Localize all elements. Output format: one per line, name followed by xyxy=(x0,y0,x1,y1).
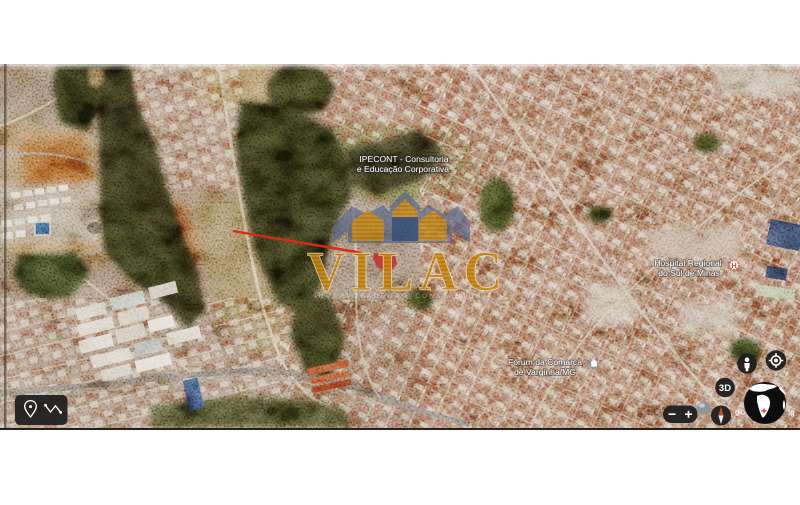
svg-text:IPECONT - Consultoria: IPECONT - Consultoria xyxy=(359,154,448,164)
svg-text:Fórum da Comarca: Fórum da Comarca xyxy=(508,357,582,367)
svg-text:glo: glo xyxy=(735,408,745,417)
svg-text:do Sul de Minas: do Sul de Minas xyxy=(658,268,720,278)
svg-text:3D: 3D xyxy=(719,383,731,394)
svg-text:Hospital Regional: Hospital Regional xyxy=(654,258,721,268)
svg-text:de Varginha/MG: de Varginha/MG xyxy=(514,367,576,377)
svg-text:H: H xyxy=(731,263,736,270)
svg-text:tg: tg xyxy=(788,408,795,417)
svg-text:e Educação Corporativa: e Educação Corporativa xyxy=(357,164,449,174)
svg-text:INCORPORADORA E CONSTRUTORA: INCORPORADORA E CONSTRUTORA xyxy=(315,293,489,300)
